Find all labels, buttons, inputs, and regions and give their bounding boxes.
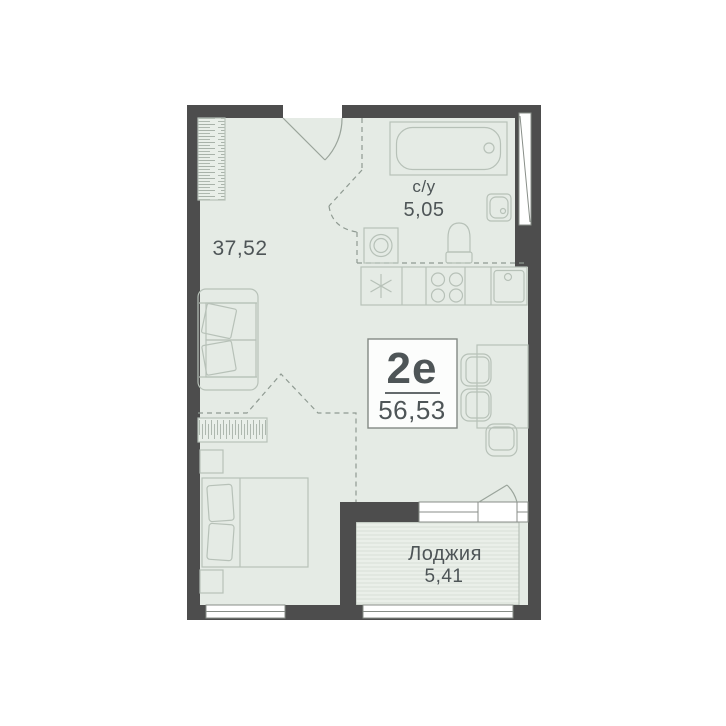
wardrobe-symbol bbox=[198, 118, 225, 200]
floor-plan: 2е 56,53 37,52 с/у 5,05 Лоджия 5,41 bbox=[0, 0, 726, 726]
wall-loggia-horizontal bbox=[340, 502, 419, 522]
window-right-wall bbox=[519, 113, 531, 225]
loggia-name-label: Лоджия bbox=[408, 543, 482, 565]
wall-top-left bbox=[187, 105, 283, 118]
dresser-symbol bbox=[198, 418, 267, 442]
unit-label-box: 2е 56,53 bbox=[368, 339, 457, 428]
floor-plan-page: 2е 56,53 37,52 с/у 5,05 Лоджия 5,41 bbox=[0, 0, 726, 726]
entrance-opening bbox=[283, 105, 342, 118]
bathroom-name-label: с/у bbox=[412, 177, 435, 196]
bathroom-area-label: 5,05 bbox=[404, 199, 445, 221]
unit-type-label: 2е bbox=[387, 344, 438, 393]
window-bottom-bedroom bbox=[206, 605, 285, 618]
loggia-area-label: 5,41 bbox=[425, 566, 464, 587]
wall-top-right bbox=[342, 105, 541, 118]
window-bottom-loggia bbox=[363, 605, 513, 618]
main-room-area-label: 37,52 bbox=[212, 237, 267, 260]
unit-total-area-label: 56,53 bbox=[378, 395, 446, 425]
